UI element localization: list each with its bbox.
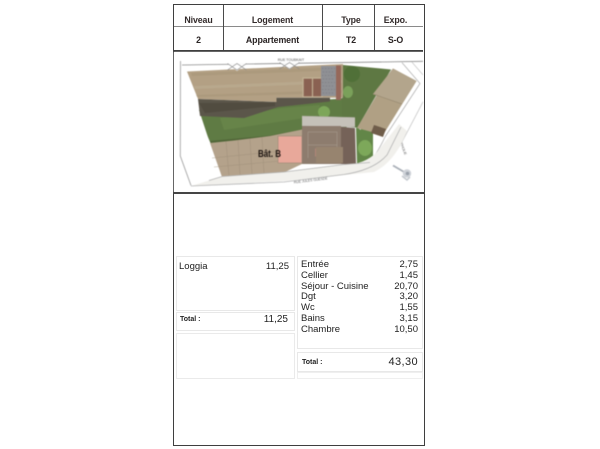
svg-text:RUE TOUBKAIT: RUE TOUBKAIT	[278, 58, 305, 62]
svg-text:Bât. B: Bât. B	[258, 148, 281, 160]
